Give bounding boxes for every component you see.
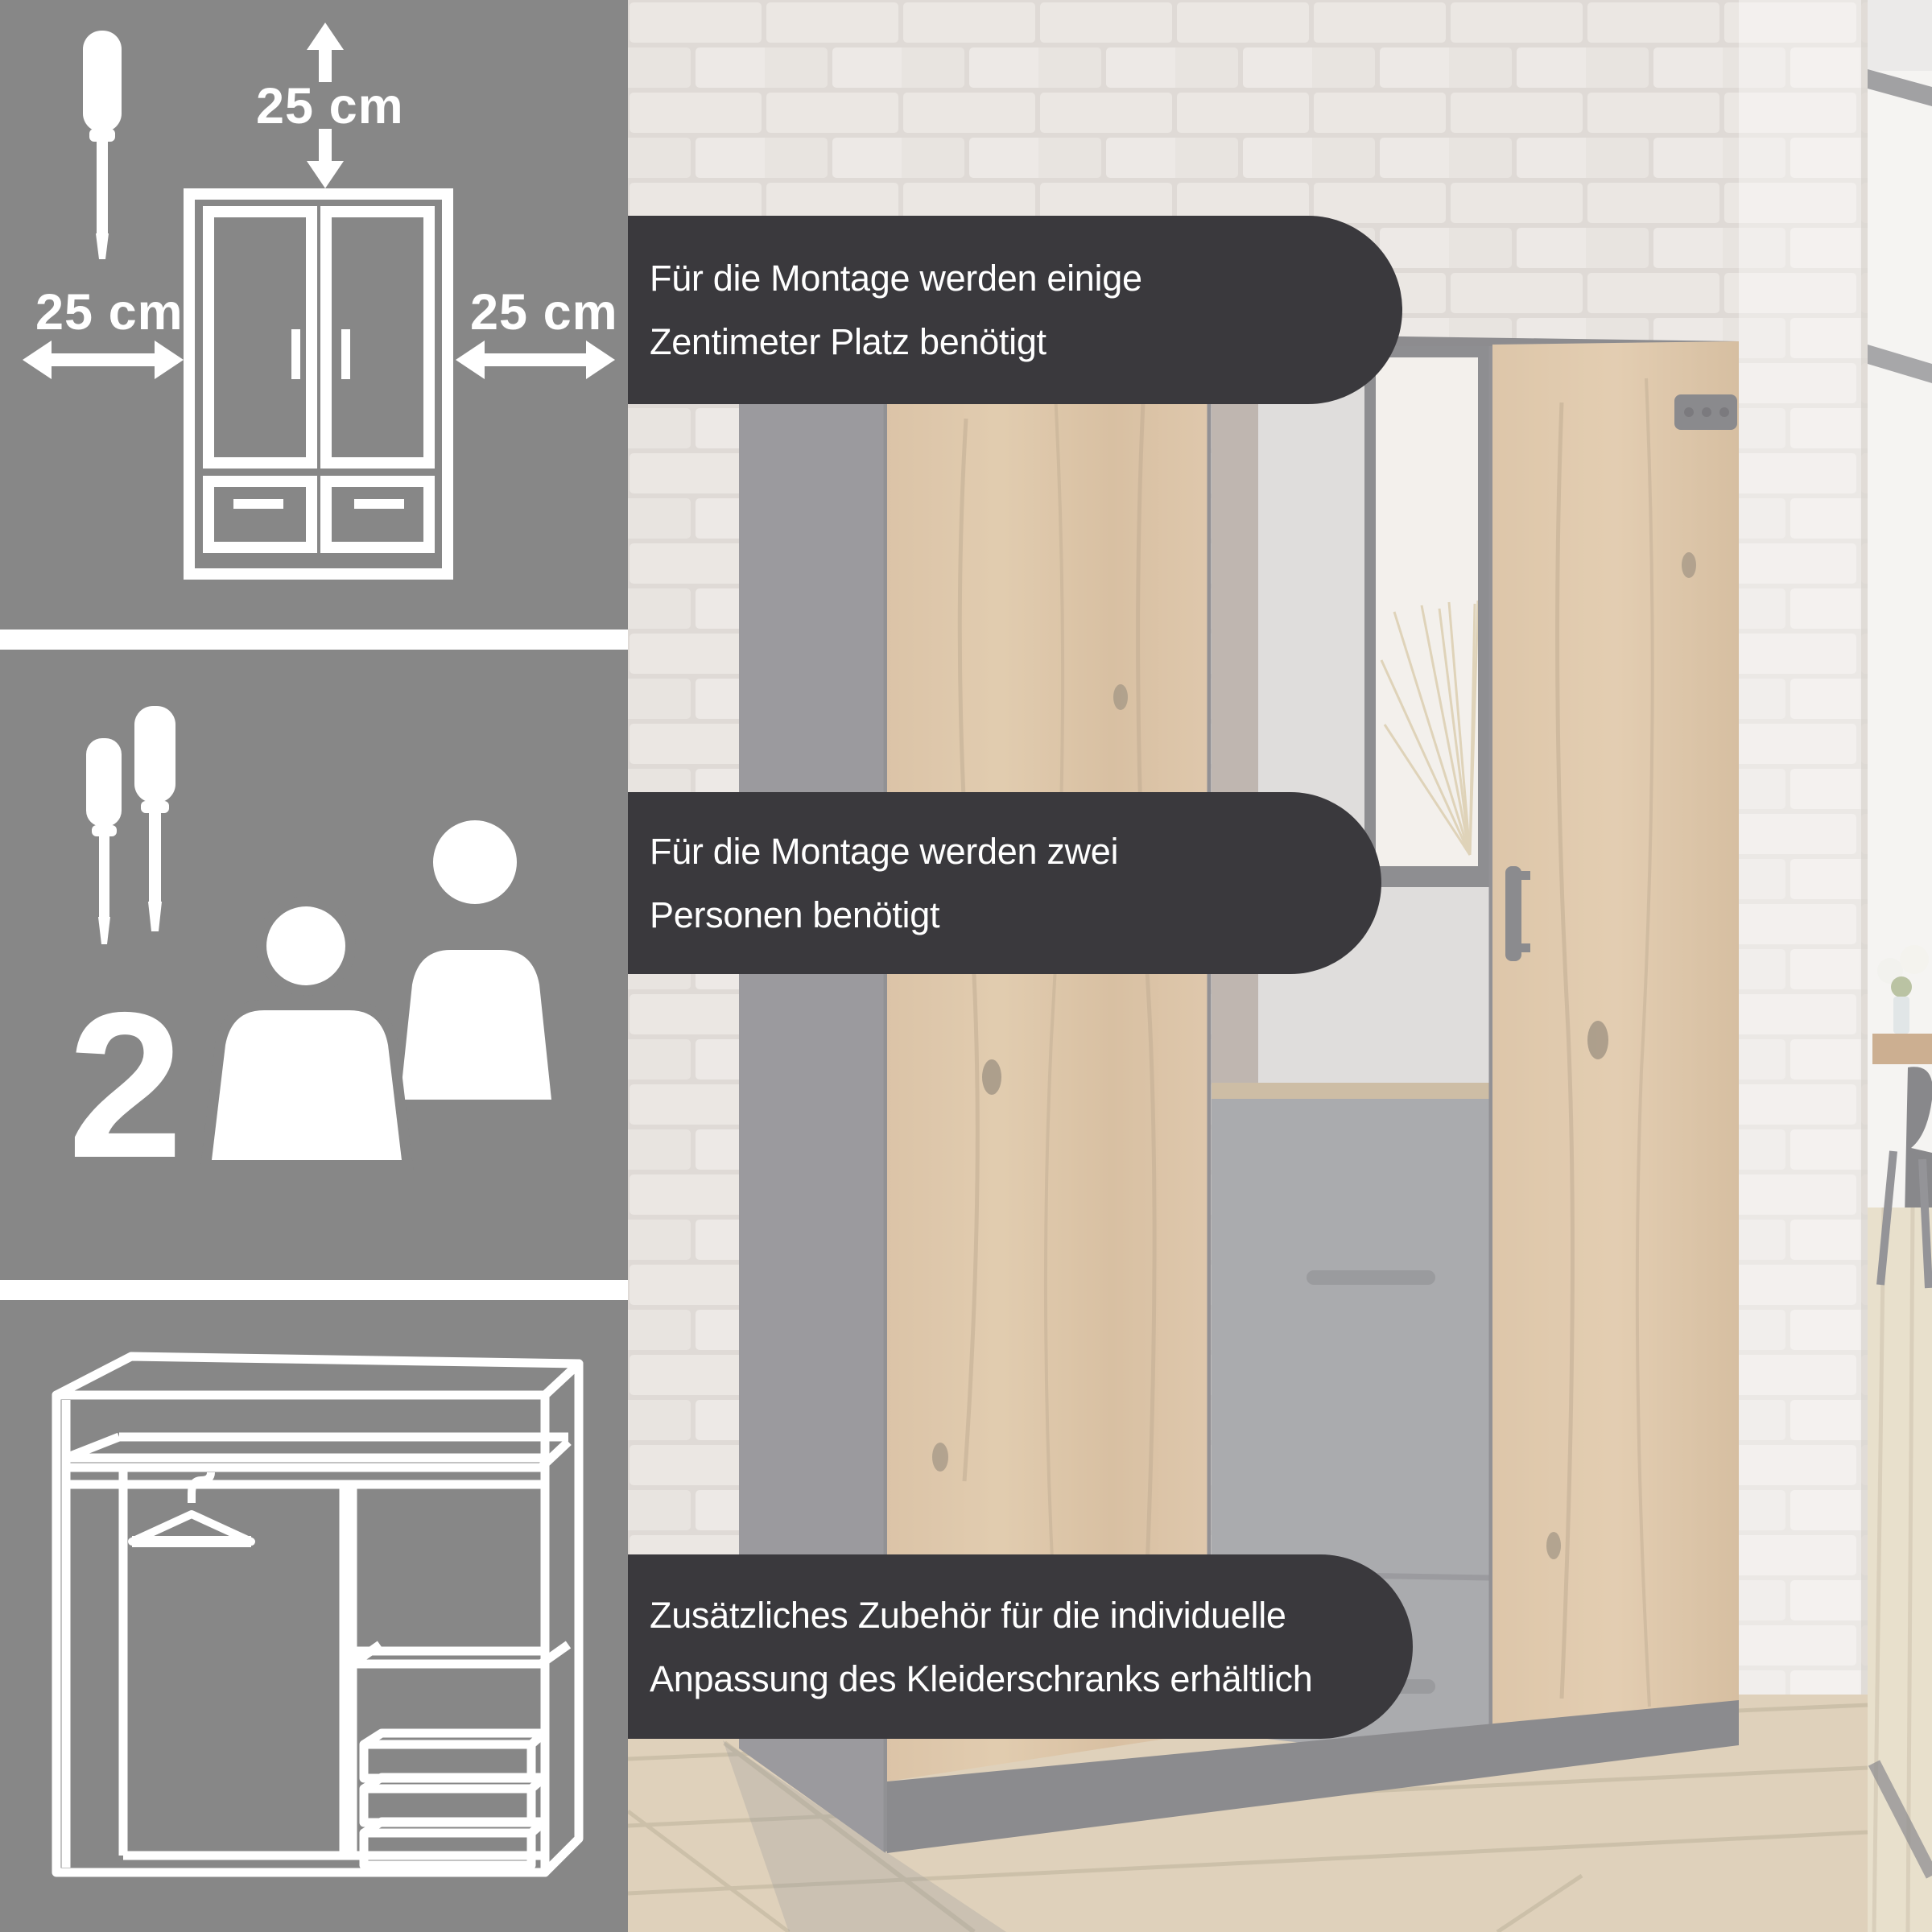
banner-line: Für die Montage werden zwei xyxy=(650,819,1381,883)
person-icon xyxy=(212,906,402,1160)
wardrobe-front-icon xyxy=(189,194,448,574)
panel-clearance: 25 cm 25 cm 25 cm xyxy=(0,0,628,630)
panel-separator xyxy=(0,1280,628,1300)
drawer-icon xyxy=(364,1733,544,1865)
screwdriver-icon xyxy=(134,706,175,931)
callout-banner-two-persons: Für die Montage werden zwei Personen ben… xyxy=(628,792,1381,974)
right-clearance-label: 25 cm xyxy=(470,283,618,341)
banner-line: Personen benötigt xyxy=(650,883,1381,947)
arrow-up-icon xyxy=(307,23,344,82)
arrow-down-icon xyxy=(307,129,344,188)
banner-line: Für die Montage werden einige xyxy=(650,246,1402,310)
double-arrow-horizontal-icon xyxy=(23,341,184,379)
shelf-icon xyxy=(353,1645,568,1664)
screwdriver-icon xyxy=(86,738,122,944)
wardrobe-interior-icon xyxy=(56,1356,579,1872)
panel-two-person-assembly: 2 xyxy=(0,650,628,1280)
callout-banner-clearance: Für die Montage werden einige Zentimeter… xyxy=(628,216,1402,404)
banner-line: Zusätzliches Zubehör für die individuell… xyxy=(650,1583,1413,1647)
double-arrow-horizontal-icon xyxy=(456,341,615,379)
left-clearance-label: 25 cm xyxy=(35,283,184,341)
info-column: 25 cm 25 cm 25 cm xyxy=(0,0,628,1932)
assembly-infographic: 25 cm 25 cm 25 cm xyxy=(0,0,1932,1932)
panel-wardrobe-interior xyxy=(0,1300,628,1932)
person-icon xyxy=(400,820,551,1100)
banner-line: Zentimeter Platz benötigt xyxy=(650,310,1402,374)
panel-separator xyxy=(0,630,628,650)
person-count: 2 xyxy=(68,981,184,1189)
banner-line: Anpassung des Kleiderschranks erhältlich xyxy=(650,1647,1413,1711)
callout-banner-accessories: Zusätzliches Zubehör für die individuell… xyxy=(628,1554,1413,1739)
top-clearance-label: 25 cm xyxy=(256,77,404,135)
screwdriver-icon xyxy=(83,31,122,259)
